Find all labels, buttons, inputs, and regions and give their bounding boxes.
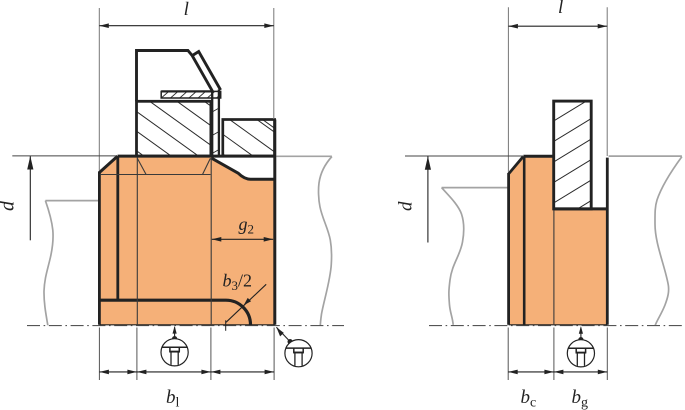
svg-text:l: l xyxy=(184,0,189,20)
svg-text:bg: bg xyxy=(572,387,589,410)
svg-text:bl: bl xyxy=(166,387,180,410)
svg-text:b3/2: b3/2 xyxy=(223,271,253,294)
svg-text:d: d xyxy=(395,201,416,211)
svg-text:l: l xyxy=(558,0,563,18)
svg-text:d: d xyxy=(0,200,19,211)
svg-text:bc: bc xyxy=(521,387,537,410)
